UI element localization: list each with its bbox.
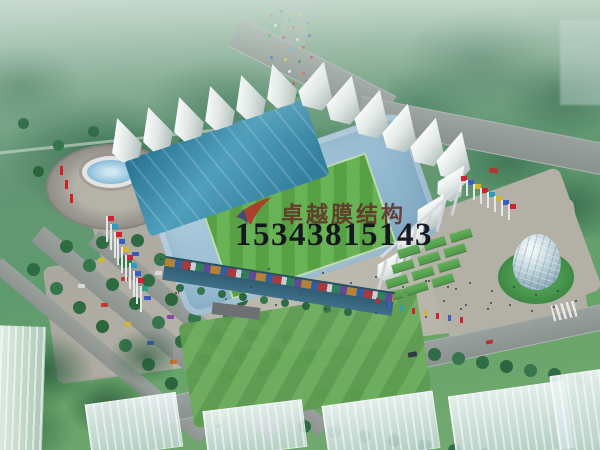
phone-number-watermark: 15343815143 [235,217,433,254]
stadium-aerial-rendering: 卓越膜结构 15343815143 [0,0,600,450]
